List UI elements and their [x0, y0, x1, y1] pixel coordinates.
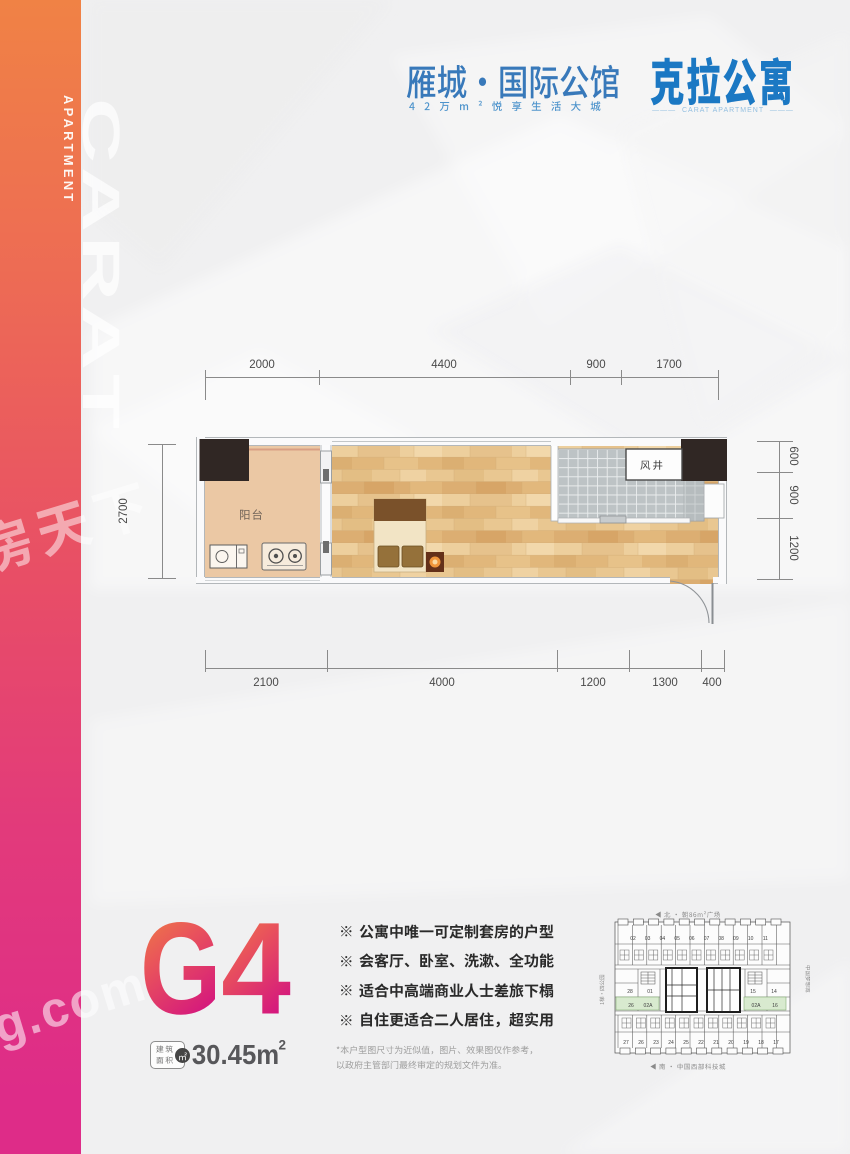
svg-text:1700: 1700 [656, 359, 682, 371]
svg-text:30.45m: 30.45m [192, 1039, 279, 1070]
svg-text:02A: 02A [644, 1003, 654, 1009]
svg-text:900: 900 [586, 359, 605, 371]
svg-text:11: 11 [763, 936, 768, 942]
svg-text:23: 23 [653, 1040, 659, 1046]
svg-text:02A: 02A [752, 1003, 762, 1009]
svg-text:26: 26 [638, 1040, 644, 1046]
svg-text:4: 4 [221, 900, 291, 1025]
svg-text:08: 08 [718, 936, 724, 942]
svg-text:14: 14 [771, 989, 777, 995]
svg-text:06: 06 [689, 936, 695, 942]
svg-text:27: 27 [623, 1040, 629, 1046]
svg-text:09: 09 [733, 936, 739, 942]
svg-text:28: 28 [627, 989, 633, 995]
svg-text:19: 19 [743, 1040, 749, 1046]
svg-text:2000: 2000 [249, 359, 275, 371]
svg-text:16: 16 [772, 1003, 778, 1009]
svg-text:2: 2 [279, 1038, 287, 1053]
svg-text:2700: 2700 [118, 498, 130, 524]
svg-text:05: 05 [674, 936, 680, 942]
svg-text:15: 15 [750, 989, 756, 995]
svg-text:G: G [140, 900, 222, 1025]
svg-text:20: 20 [728, 1040, 734, 1046]
svg-text:21: 21 [713, 1040, 719, 1046]
svg-text:07: 07 [704, 936, 710, 942]
svg-text:04: 04 [660, 936, 666, 942]
svg-text:22: 22 [698, 1040, 704, 1046]
svg-text:26: 26 [628, 1003, 634, 1009]
svg-text:03: 03 [645, 936, 651, 942]
svg-text:17: 17 [773, 1040, 779, 1046]
svg-text:24: 24 [668, 1040, 674, 1046]
svg-text:01: 01 [647, 989, 653, 995]
svg-text:10: 10 [748, 936, 754, 942]
svg-text:25: 25 [683, 1040, 689, 1046]
svg-text:4400: 4400 [431, 359, 457, 371]
svg-text:02: 02 [630, 936, 636, 942]
svg-text:18: 18 [758, 1040, 764, 1046]
